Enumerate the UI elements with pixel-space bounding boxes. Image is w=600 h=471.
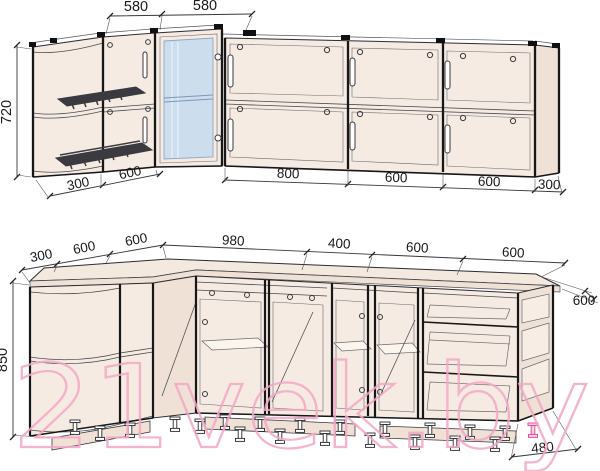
watermark-text: 21vek.by [12,341,590,471]
dim-label-upper-600-left: 600 [117,163,142,182]
dim-label-upper-600-b: 600 [478,174,501,190]
dim-label-base-400: 400 [328,235,351,251]
dim-label-upper-800: 800 [277,166,300,182]
dim-label-base-600-d: 600 [502,244,525,260]
dim-label-base-depth-600: 600 [573,293,596,308]
kitchen-drawing-canvas: 580 580 720 300 600 800 600 600 300 [0,0,600,471]
dim-label-upper-300-right: 300 [538,177,561,193]
dim-label-upper-300-left: 300 [65,174,90,193]
dim-label-base-980: 980 [222,232,245,248]
dim-label-height-850: 850 [0,348,11,372]
dim-label-top-580-right: 580 [193,0,217,14]
dim-label-top-580-left: 580 [124,0,148,15]
dim-label-base-600-c: 600 [406,239,429,255]
dim-label-base-600-a: 600 [72,238,97,257]
kitchen-drawing-page: 580 580 720 300 600 800 600 600 300 [0,0,600,471]
dim-label-base-600-b: 600 [124,230,149,249]
dim-label-upper-600-a: 600 [385,170,408,186]
dim-label-height-720: 720 [0,100,15,124]
dim-label-base-300: 300 [29,246,54,265]
glass-door [164,38,213,159]
upper-cabinets-drawing: 580 580 720 300 600 800 600 600 300 [0,0,566,199]
